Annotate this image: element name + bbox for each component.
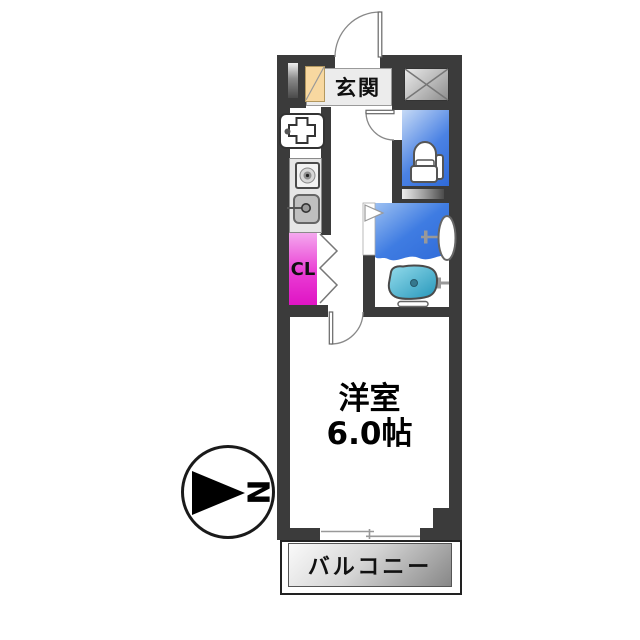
wall-room-top-left xyxy=(277,305,328,317)
pipe-space-strip xyxy=(402,189,444,199)
closet-label: CL xyxy=(291,259,316,280)
sliding-window-icon xyxy=(321,529,420,539)
balcony: バルコニー xyxy=(288,543,452,587)
wall-toilet-left xyxy=(392,140,402,186)
closet-folding-door-icon xyxy=(320,234,337,303)
bathroom xyxy=(375,203,449,307)
main-room-label: 洋室 6.0帖 xyxy=(290,382,449,452)
floorplan-canvas: 玄関 CL 洋室 6.0帖 バルコニー xyxy=(0,0,640,640)
room-door-icon xyxy=(329,312,363,344)
main-room-size: 6.0帖 xyxy=(290,417,449,452)
balcony-label: バルコニー xyxy=(308,549,433,581)
entrance-door-icon xyxy=(335,12,382,57)
closet: CL xyxy=(289,233,317,305)
toilet-door-icon xyxy=(366,110,394,140)
main-room-name: 洋室 xyxy=(290,382,449,417)
compass-icon: N xyxy=(183,447,275,538)
wall-pillar-bottom-right xyxy=(433,508,449,528)
toilet-room xyxy=(402,110,449,186)
pipe-shaft-strip xyxy=(288,63,298,98)
gas-stove-icon xyxy=(279,113,325,149)
wall-right xyxy=(449,55,462,540)
entrance-label: 玄関 xyxy=(335,72,381,102)
shaft-cross-icon xyxy=(404,68,449,101)
kitchen-sink-icon xyxy=(293,194,320,224)
wall-bottom-right xyxy=(420,528,462,540)
burner-icon xyxy=(295,162,320,189)
wall-bottom-left xyxy=(277,528,320,540)
wall-above-toilet xyxy=(392,101,449,110)
compass-north-letter: N xyxy=(240,479,275,504)
shoe-cabinet-icon xyxy=(305,66,325,102)
